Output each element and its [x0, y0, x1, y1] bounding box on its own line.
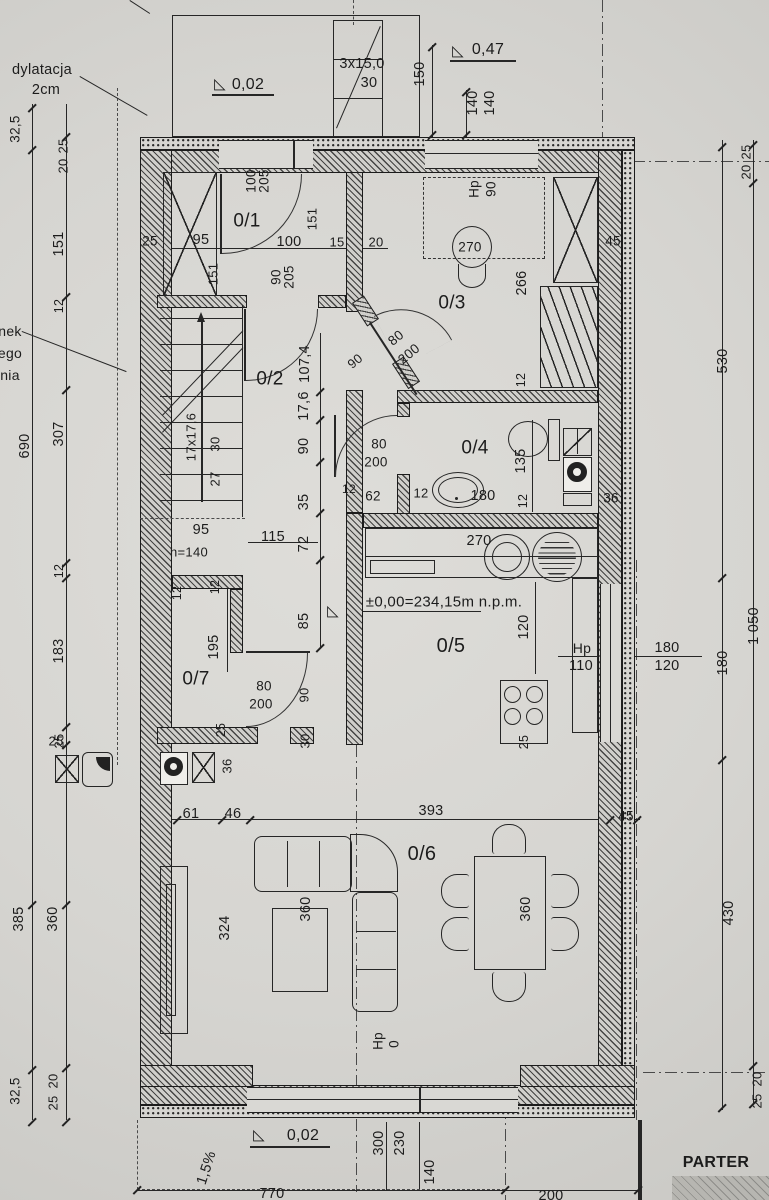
room-label-0-1: 0/1 — [233, 212, 260, 231]
dim-12-07: 12 — [209, 580, 222, 595]
washing-machine-bath-drum — [567, 462, 587, 482]
dim-30-07: 30 — [299, 733, 312, 748]
h140-dashed-line — [140, 518, 245, 519]
dim-770: 770 — [259, 1187, 284, 1200]
wall-corner-bl — [140, 1065, 253, 1087]
dim-hp0-06: 0 — [387, 1040, 401, 1048]
dim-12-l1: 12 — [53, 299, 66, 314]
room-label-0-2: 0/2 — [256, 370, 283, 389]
door-0-1-h: 205 — [257, 169, 271, 192]
dim-1050: 1 050 — [747, 607, 762, 645]
dim-25-k: 25 — [518, 735, 531, 750]
sofa-corner — [350, 834, 398, 892]
dim-385: 385 — [12, 906, 27, 931]
dim-140-b: 140 — [483, 90, 498, 115]
dim-32-5-tl: 32,5 — [8, 115, 22, 142]
dim-line-right-inner — [722, 140, 723, 1110]
gully-quarter — [96, 757, 110, 771]
dim-hp-06: Hp — [371, 1032, 385, 1050]
dim-90-c: 90 — [297, 438, 312, 455]
dim-12-c2: 12 — [413, 487, 428, 500]
dim-36-wm: 36 — [603, 491, 619, 505]
level-zero-tri: ◺ — [327, 604, 339, 619]
dim-115: 115 — [261, 530, 285, 545]
dim-45-tr: 45 — [605, 234, 621, 248]
dim-183: 183 — [52, 638, 67, 663]
drain-box-outside — [55, 755, 79, 783]
level-porch: 0,02 — [232, 77, 264, 93]
dim-360-ct: 360 — [299, 896, 314, 921]
wall-07-bottom — [157, 727, 258, 744]
terrace-outline — [137, 1120, 505, 1190]
stairs-arrow-head — [197, 312, 205, 322]
dim-25-bl: 25 — [47, 1095, 60, 1110]
dim-20-l: 20 — [57, 158, 70, 173]
burner-3 — [504, 708, 521, 725]
dim-120-k: 120 — [517, 614, 532, 639]
dining-chair-bottom — [492, 972, 526, 1002]
window-top-glazing — [425, 153, 538, 154]
burner-2 — [526, 686, 543, 703]
dim-690: 690 — [18, 433, 33, 458]
stairs-note: 17x17,6 — [185, 413, 198, 461]
win-k-hp: Hp — [573, 641, 592, 655]
dim-20-01: 20 — [368, 236, 383, 249]
edge-text-2: ego — [0, 346, 22, 360]
dim-140-a: 140 — [466, 90, 481, 115]
win-hp-90: 90 — [484, 181, 498, 197]
dim-61: 61 — [183, 807, 200, 822]
note-dylatacja-2: 2cm — [32, 83, 60, 98]
dining-chair-right-2 — [551, 917, 579, 951]
kitchen-sink-2-ribs — [538, 538, 576, 576]
dim-45-br: 45 — [618, 809, 634, 823]
burner-4 — [526, 708, 543, 725]
dim-266: 266 — [515, 270, 530, 295]
dim-135: 135 — [514, 448, 529, 473]
window-right-glazing — [610, 584, 611, 742]
dim-17-6: 17,6 — [297, 391, 312, 420]
dim-12-c1: 12 — [342, 483, 356, 495]
step-line-2 — [333, 98, 383, 99]
dim-150: 150 — [413, 61, 428, 86]
dim-46: 46 — [225, 807, 242, 822]
wall-right-insulation — [622, 150, 635, 1105]
dim-20-bl: 20 — [47, 1073, 60, 1088]
wardrobe-0-3 — [540, 286, 598, 388]
wall-under-closet-b — [318, 295, 346, 308]
level-entry-tri: ◺ — [452, 44, 464, 59]
appliance-07 — [192, 752, 215, 783]
wall-01-right — [346, 172, 363, 312]
stairs-30: 30 — [209, 436, 222, 451]
washing-machine-07-drum — [164, 757, 183, 776]
edge-text-3: nia — [0, 368, 20, 382]
kitchen-sink-1-inner — [492, 542, 522, 572]
dim-360-dt: 360 — [519, 896, 534, 921]
door-0-4-w: 80 — [371, 437, 387, 451]
dim-20-br: 20 — [751, 1071, 764, 1086]
stairs-27: 27 — [209, 471, 222, 486]
dim-line-bottom — [137, 1190, 640, 1191]
room-label-0-4: 0/4 — [461, 439, 488, 458]
dim-12-st: 12 — [171, 586, 184, 601]
dim-line-central — [320, 333, 321, 648]
wall-03-04 — [397, 390, 598, 403]
dining-chair-left-1 — [441, 874, 469, 908]
roof-edge-line — [129, 0, 150, 14]
dim-140-b2: 140 — [423, 1159, 438, 1184]
dim-85-c: 85 — [297, 613, 312, 630]
dim-151-01b: 151 — [306, 208, 319, 231]
door-0-7-h: 200 — [249, 697, 272, 711]
dining-chair-top — [492, 824, 526, 854]
parter-shaded-box — [672, 1176, 769, 1200]
wall-top — [140, 150, 635, 173]
bath-shelf-top — [563, 428, 592, 456]
dim-100-01: 100 — [276, 235, 301, 250]
dim-195: 195 — [207, 634, 222, 659]
wall-04-05 — [363, 513, 598, 528]
terrace-door-glazing — [247, 1099, 518, 1100]
door-0-2-h: 205 — [282, 265, 296, 288]
floor-title: PARTER — [683, 1155, 749, 1171]
entry-door-opening — [219, 140, 313, 169]
note-h140: h=140 — [170, 546, 208, 559]
washbasin-drain — [455, 497, 458, 500]
level-zero-bar — [346, 611, 481, 612]
win-k-110: 110 — [569, 659, 593, 674]
wall-07-right — [230, 589, 243, 653]
dim-230: 230 — [393, 1130, 408, 1155]
win-hp: Hp — [467, 180, 481, 198]
gully-outside — [82, 752, 113, 787]
dining-chair-right-1 — [551, 874, 579, 908]
dim-200: 200 — [538, 1189, 563, 1200]
dim-95-st: 95 — [193, 523, 210, 538]
tv-cabinet-inner — [166, 884, 176, 1016]
dim-530: 530 — [716, 348, 731, 373]
bath-shelf-bottom — [563, 493, 592, 506]
dim-95-01: 95 — [193, 233, 210, 248]
dim-62: 62 — [365, 489, 381, 503]
dim-430: 430 — [722, 900, 737, 925]
level-entry: 0,47 — [472, 42, 504, 58]
level-porch-tri: ◺ — [214, 77, 226, 92]
wall-kitchen-left — [346, 513, 363, 745]
burner-1 — [504, 686, 521, 703]
dim-32-5-bl: 32,5 — [8, 1077, 22, 1104]
dim-360-l: 360 — [46, 906, 61, 931]
dim-270-cnt: 270 — [466, 534, 491, 549]
ext-stairs-note-2: 30 — [361, 76, 378, 91]
level-terrace-tri: ◺ — [253, 1128, 265, 1143]
room-label-0-3: 0/3 — [438, 294, 465, 313]
leader-dylatacja — [79, 76, 147, 116]
dim-107-4: 107,4 — [298, 345, 313, 383]
dim-180-wb: 180 — [470, 489, 495, 504]
win-k-120: 120 — [654, 659, 679, 674]
dim-151-01: 151 — [207, 263, 220, 286]
chair-270: 270 — [458, 240, 481, 254]
dining-table — [474, 856, 546, 970]
door-0-3-90: 90 — [345, 351, 365, 371]
dim-35-c: 35 — [297, 494, 312, 511]
edge-text-1: nek — [0, 324, 22, 338]
dim-90-07: 90 — [298, 687, 311, 702]
note-dylatacja-1: dylatacja — [12, 63, 72, 78]
win-k-180: 180 — [654, 641, 679, 656]
window-top — [425, 140, 538, 169]
terrace-door-divider — [419, 1088, 421, 1112]
dim-36-07: 36 — [221, 758, 234, 773]
dim-20-r: 20 — [740, 164, 753, 179]
room-label-0-6: 0/6 — [408, 844, 437, 864]
entry-door-divider — [293, 141, 295, 168]
sofa-horizontal — [254, 836, 352, 892]
door-0-7-w: 80 — [256, 679, 272, 693]
dim-300: 300 — [372, 1130, 387, 1155]
axis-line-top-right — [602, 0, 603, 140]
level-zero: ±0,00=234,15m n.p.m. — [366, 595, 522, 610]
wall-04-left-b — [397, 474, 410, 514]
axis-line-top-right-h — [633, 161, 769, 162]
dim-line-05 — [535, 582, 536, 674]
wall-top-insulation — [140, 137, 635, 150]
dim-72-c: 72 — [297, 536, 312, 553]
leader-left-note — [22, 331, 127, 372]
room-label-0-7: 0/7 — [182, 670, 209, 689]
dim-15-01: 15 — [329, 236, 344, 249]
axis-line-right — [636, 560, 637, 1120]
dim-line-left-outer — [32, 104, 33, 1120]
wall-04-left-a — [397, 403, 410, 417]
dim-324: 324 — [218, 915, 233, 940]
toilet-tank — [548, 419, 560, 461]
dim-line-150 — [432, 45, 433, 137]
dim-307: 307 — [52, 421, 67, 446]
dim-151-l: 151 — [52, 231, 67, 256]
door-0-4-h: 200 — [364, 455, 387, 469]
level-terrace: 0,02 — [287, 1128, 319, 1144]
floor-plan-canvas: dylatacja2cm◺0,023x15,030◺0,47150140140H… — [0, 0, 769, 1200]
dim-12-03: 12 — [515, 373, 528, 388]
closet-0-3 — [553, 177, 598, 283]
dim-25-07: 25 — [215, 723, 228, 738]
ext-stairs-note-1: 3x15,0 — [339, 57, 384, 72]
room-label-0-5: 0/5 — [437, 636, 466, 656]
axis-line-left — [117, 88, 118, 765]
dim-12-c3: 12 — [517, 494, 530, 509]
dim-180-r: 180 — [716, 650, 731, 675]
dim-line-07 — [227, 577, 228, 672]
kitchen-cabinet — [370, 560, 435, 574]
window-right-kitchen — [600, 584, 622, 742]
chair-arc-0-3 — [458, 264, 486, 288]
dim-25-01: 25 — [142, 234, 158, 248]
wall-corner-br — [520, 1065, 635, 1087]
stairs-walk-line — [201, 320, 203, 502]
level-entry-bar — [450, 60, 516, 62]
sofa-vertical — [352, 892, 398, 1012]
terrace-door-opening — [247, 1087, 518, 1113]
dim-393: 393 — [418, 804, 443, 819]
dining-chair-left-2 — [441, 917, 469, 951]
